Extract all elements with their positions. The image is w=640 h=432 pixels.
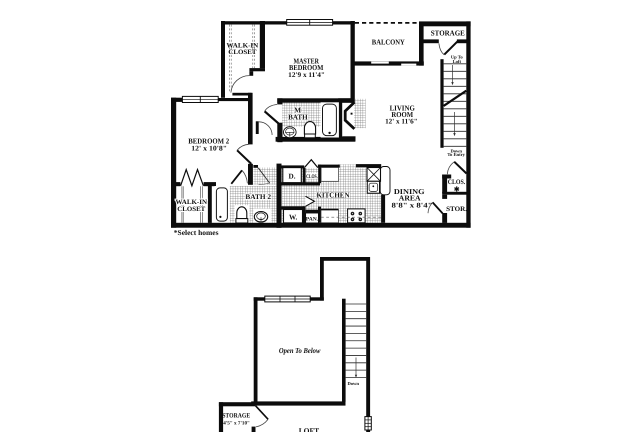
svg-text:To Entry: To Entry bbox=[447, 152, 465, 157]
svg-text:PAN.: PAN. bbox=[306, 217, 319, 223]
svg-text:WALK-IN: WALK-IN bbox=[176, 199, 208, 206]
svg-text:12' x 10'8": 12' x 10'8" bbox=[191, 145, 227, 153]
svg-text:D.: D. bbox=[289, 172, 296, 180]
svg-text:BATH: BATH bbox=[288, 113, 308, 122]
svg-text:STORAGE: STORAGE bbox=[431, 28, 465, 37]
svg-text:STOR.: STOR. bbox=[446, 206, 467, 213]
svg-text:CLOSET: CLOSET bbox=[228, 49, 257, 56]
svg-text:4'5" x 7'10": 4'5" x 7'10" bbox=[223, 420, 250, 426]
svg-text:12'9 x 11'4": 12'9 x 11'4" bbox=[288, 71, 325, 79]
svg-text:Loft: Loft bbox=[453, 59, 462, 64]
svg-text:Open To Below: Open To Below bbox=[279, 346, 321, 355]
svg-text:CLOS.: CLOS. bbox=[448, 179, 466, 186]
svg-text:STORAGE: STORAGE bbox=[222, 412, 251, 419]
svg-text:Down: Down bbox=[347, 381, 359, 386]
svg-text:BATH 2: BATH 2 bbox=[245, 193, 271, 201]
svg-text:12' x 11'6": 12' x 11'6" bbox=[385, 118, 418, 126]
svg-text:CLOS.: CLOS. bbox=[306, 174, 318, 180]
svg-text:W.: W. bbox=[289, 214, 298, 222]
svg-text:*Select homes: *Select homes bbox=[174, 228, 219, 237]
svg-text:BALCONY: BALCONY bbox=[372, 38, 406, 47]
svg-text:KITCHEN: KITCHEN bbox=[317, 190, 351, 199]
svg-text:CLOSET: CLOSET bbox=[177, 206, 206, 213]
svg-text:8'8" x 8'4": 8'8" x 8'4" bbox=[392, 201, 433, 209]
svg-text:LOFT: LOFT bbox=[299, 427, 320, 432]
